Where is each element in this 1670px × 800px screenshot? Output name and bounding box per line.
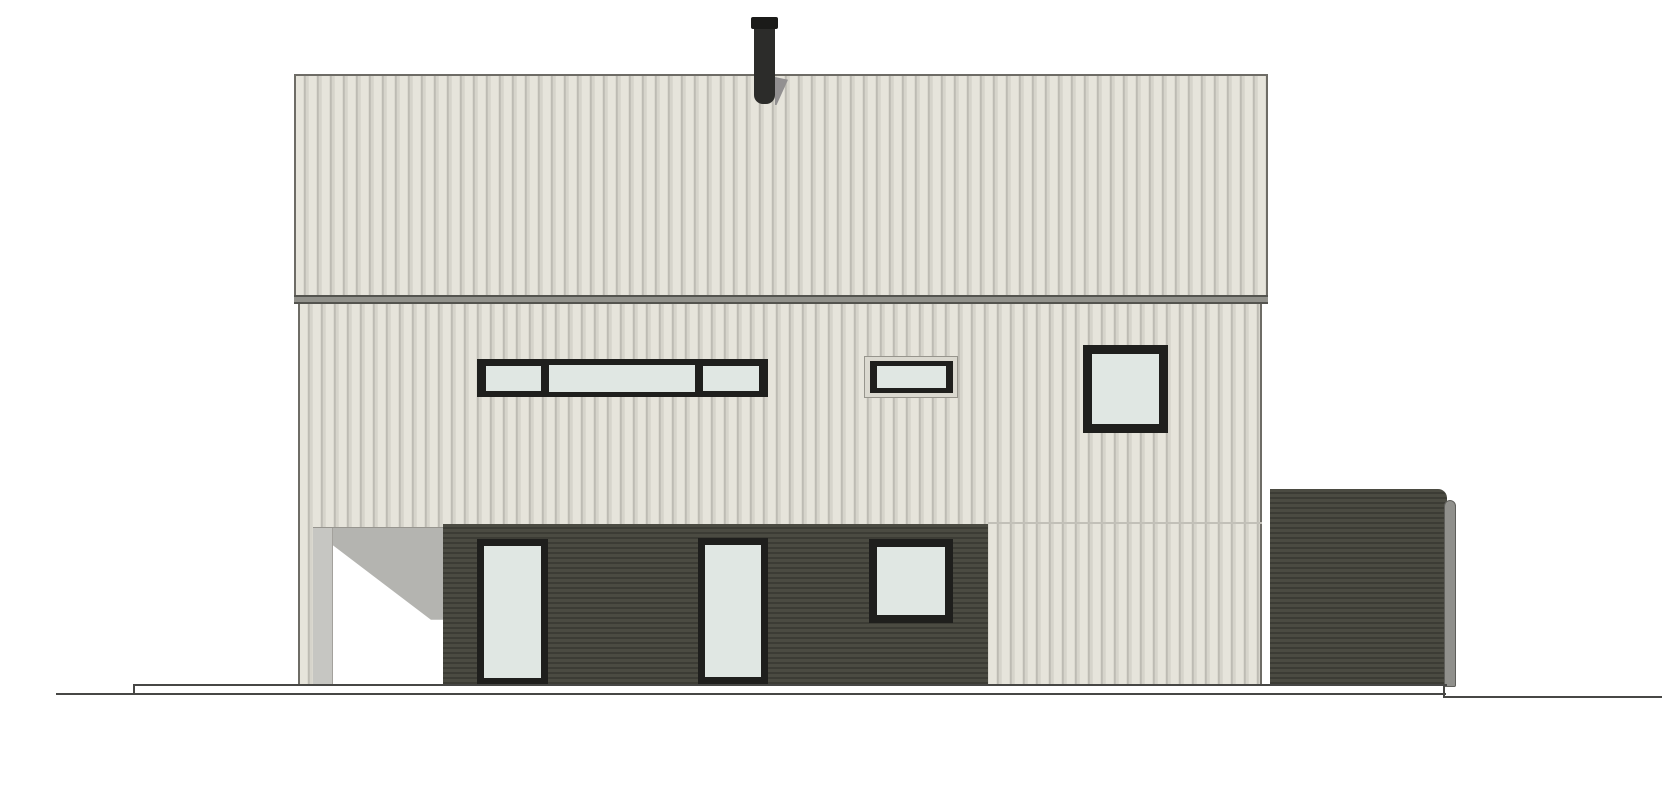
strip-window	[477, 359, 768, 397]
strip-window-pane-right	[703, 366, 759, 391]
chimney-cap	[751, 17, 778, 29]
downpipe	[1444, 500, 1456, 687]
terrain-line-left	[56, 693, 1446, 695]
glazed-door-right-glass	[705, 545, 761, 677]
chimney-flue	[754, 28, 775, 104]
glazed-door-right	[698, 538, 768, 684]
carport-recess	[313, 527, 443, 686]
eave-trim-band	[294, 295, 1268, 304]
ground-square-window-glass	[877, 547, 945, 615]
carport-side-wall	[313, 528, 333, 686]
strip-window-pane-left	[486, 366, 541, 391]
roof-fascia-band	[294, 74, 1268, 295]
floor-slab-line	[988, 522, 1262, 524]
foundation-line	[133, 684, 1447, 686]
strip-window-pane-middle	[549, 365, 695, 392]
glazed-door-left-glass	[484, 546, 541, 678]
glazed-door-left	[477, 539, 548, 685]
vent-window-glass	[877, 366, 946, 388]
elevation-drawing	[0, 0, 1670, 800]
upper-square-window	[1083, 345, 1168, 433]
annex-dark-volume	[1270, 489, 1447, 685]
terrain-line-right	[1444, 696, 1662, 698]
upper-square-window-glass	[1092, 354, 1159, 424]
ground-square-window	[869, 539, 953, 623]
vent-window	[870, 361, 953, 393]
carport-open-passage	[333, 544, 443, 687]
